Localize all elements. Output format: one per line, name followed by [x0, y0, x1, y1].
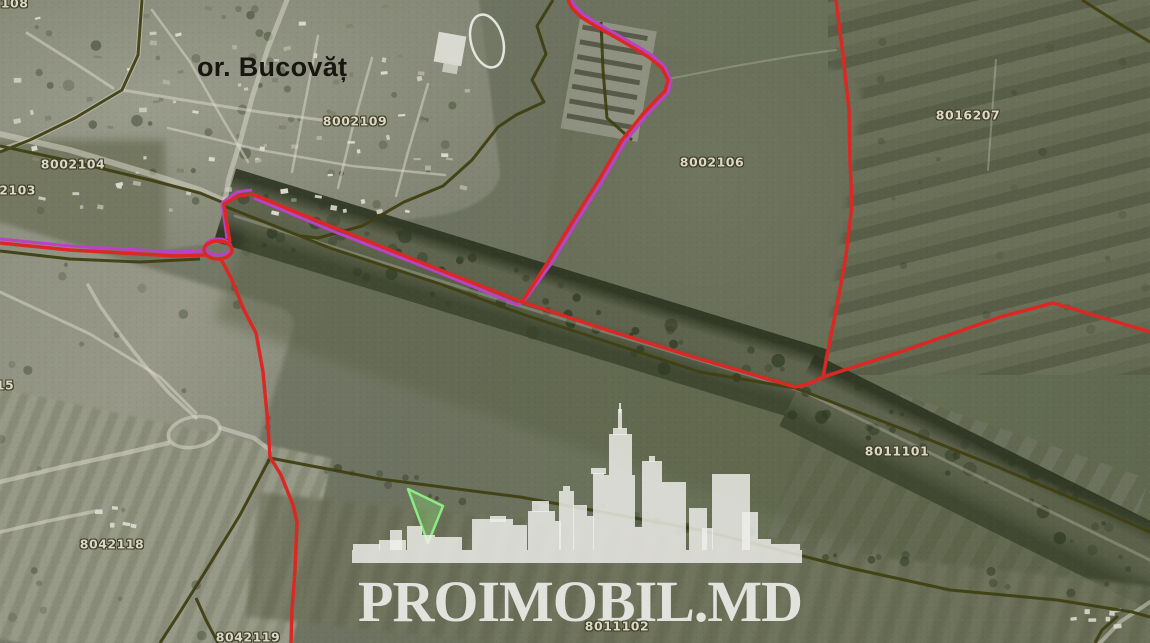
road — [0, 443, 168, 482]
satellite-map-view: PROIMOBIL.MD 210880021098002104021038002… — [0, 0, 1150, 643]
road — [668, 50, 836, 79]
road — [0, 292, 196, 413]
parcel-label: 8002104 — [41, 157, 105, 172]
road — [0, 0, 142, 150]
road — [27, 33, 113, 88]
road — [122, 90, 330, 121]
roundabout — [165, 412, 222, 452]
town-label: or. Bucovăț — [197, 52, 347, 83]
parcel-label: 8016207 — [936, 108, 1000, 123]
cadastral-boundary — [1082, 0, 1150, 42]
road — [225, 0, 287, 200]
parcel-label: 8011101 — [865, 444, 929, 459]
road — [0, 511, 96, 532]
road — [221, 428, 270, 450]
parcel-label: 8042118 — [80, 537, 144, 552]
road — [396, 84, 428, 196]
road — [152, 10, 248, 162]
farm-buildings — [561, 18, 657, 142]
parcel-label: 15 — [0, 378, 14, 393]
red-boundary — [252, 194, 1150, 387]
parcel-label: 8002106 — [680, 155, 744, 170]
red-boundary — [221, 259, 297, 643]
parcel-label: 8042119 — [216, 630, 280, 643]
cadastral-boundary — [160, 458, 270, 643]
parcel-label: 8011102 — [585, 619, 649, 634]
parcel-label: 8002109 — [323, 114, 387, 129]
parcel-label: 2108 — [0, 0, 28, 11]
stadium — [434, 11, 510, 75]
parcel-label: 02103 — [0, 183, 36, 198]
road — [235, 216, 1150, 560]
map-lines — [0, 0, 1150, 643]
cadastral-boundary — [270, 458, 1150, 617]
cadastral-boundary — [0, 0, 142, 152]
red-boundary — [823, 0, 852, 377]
